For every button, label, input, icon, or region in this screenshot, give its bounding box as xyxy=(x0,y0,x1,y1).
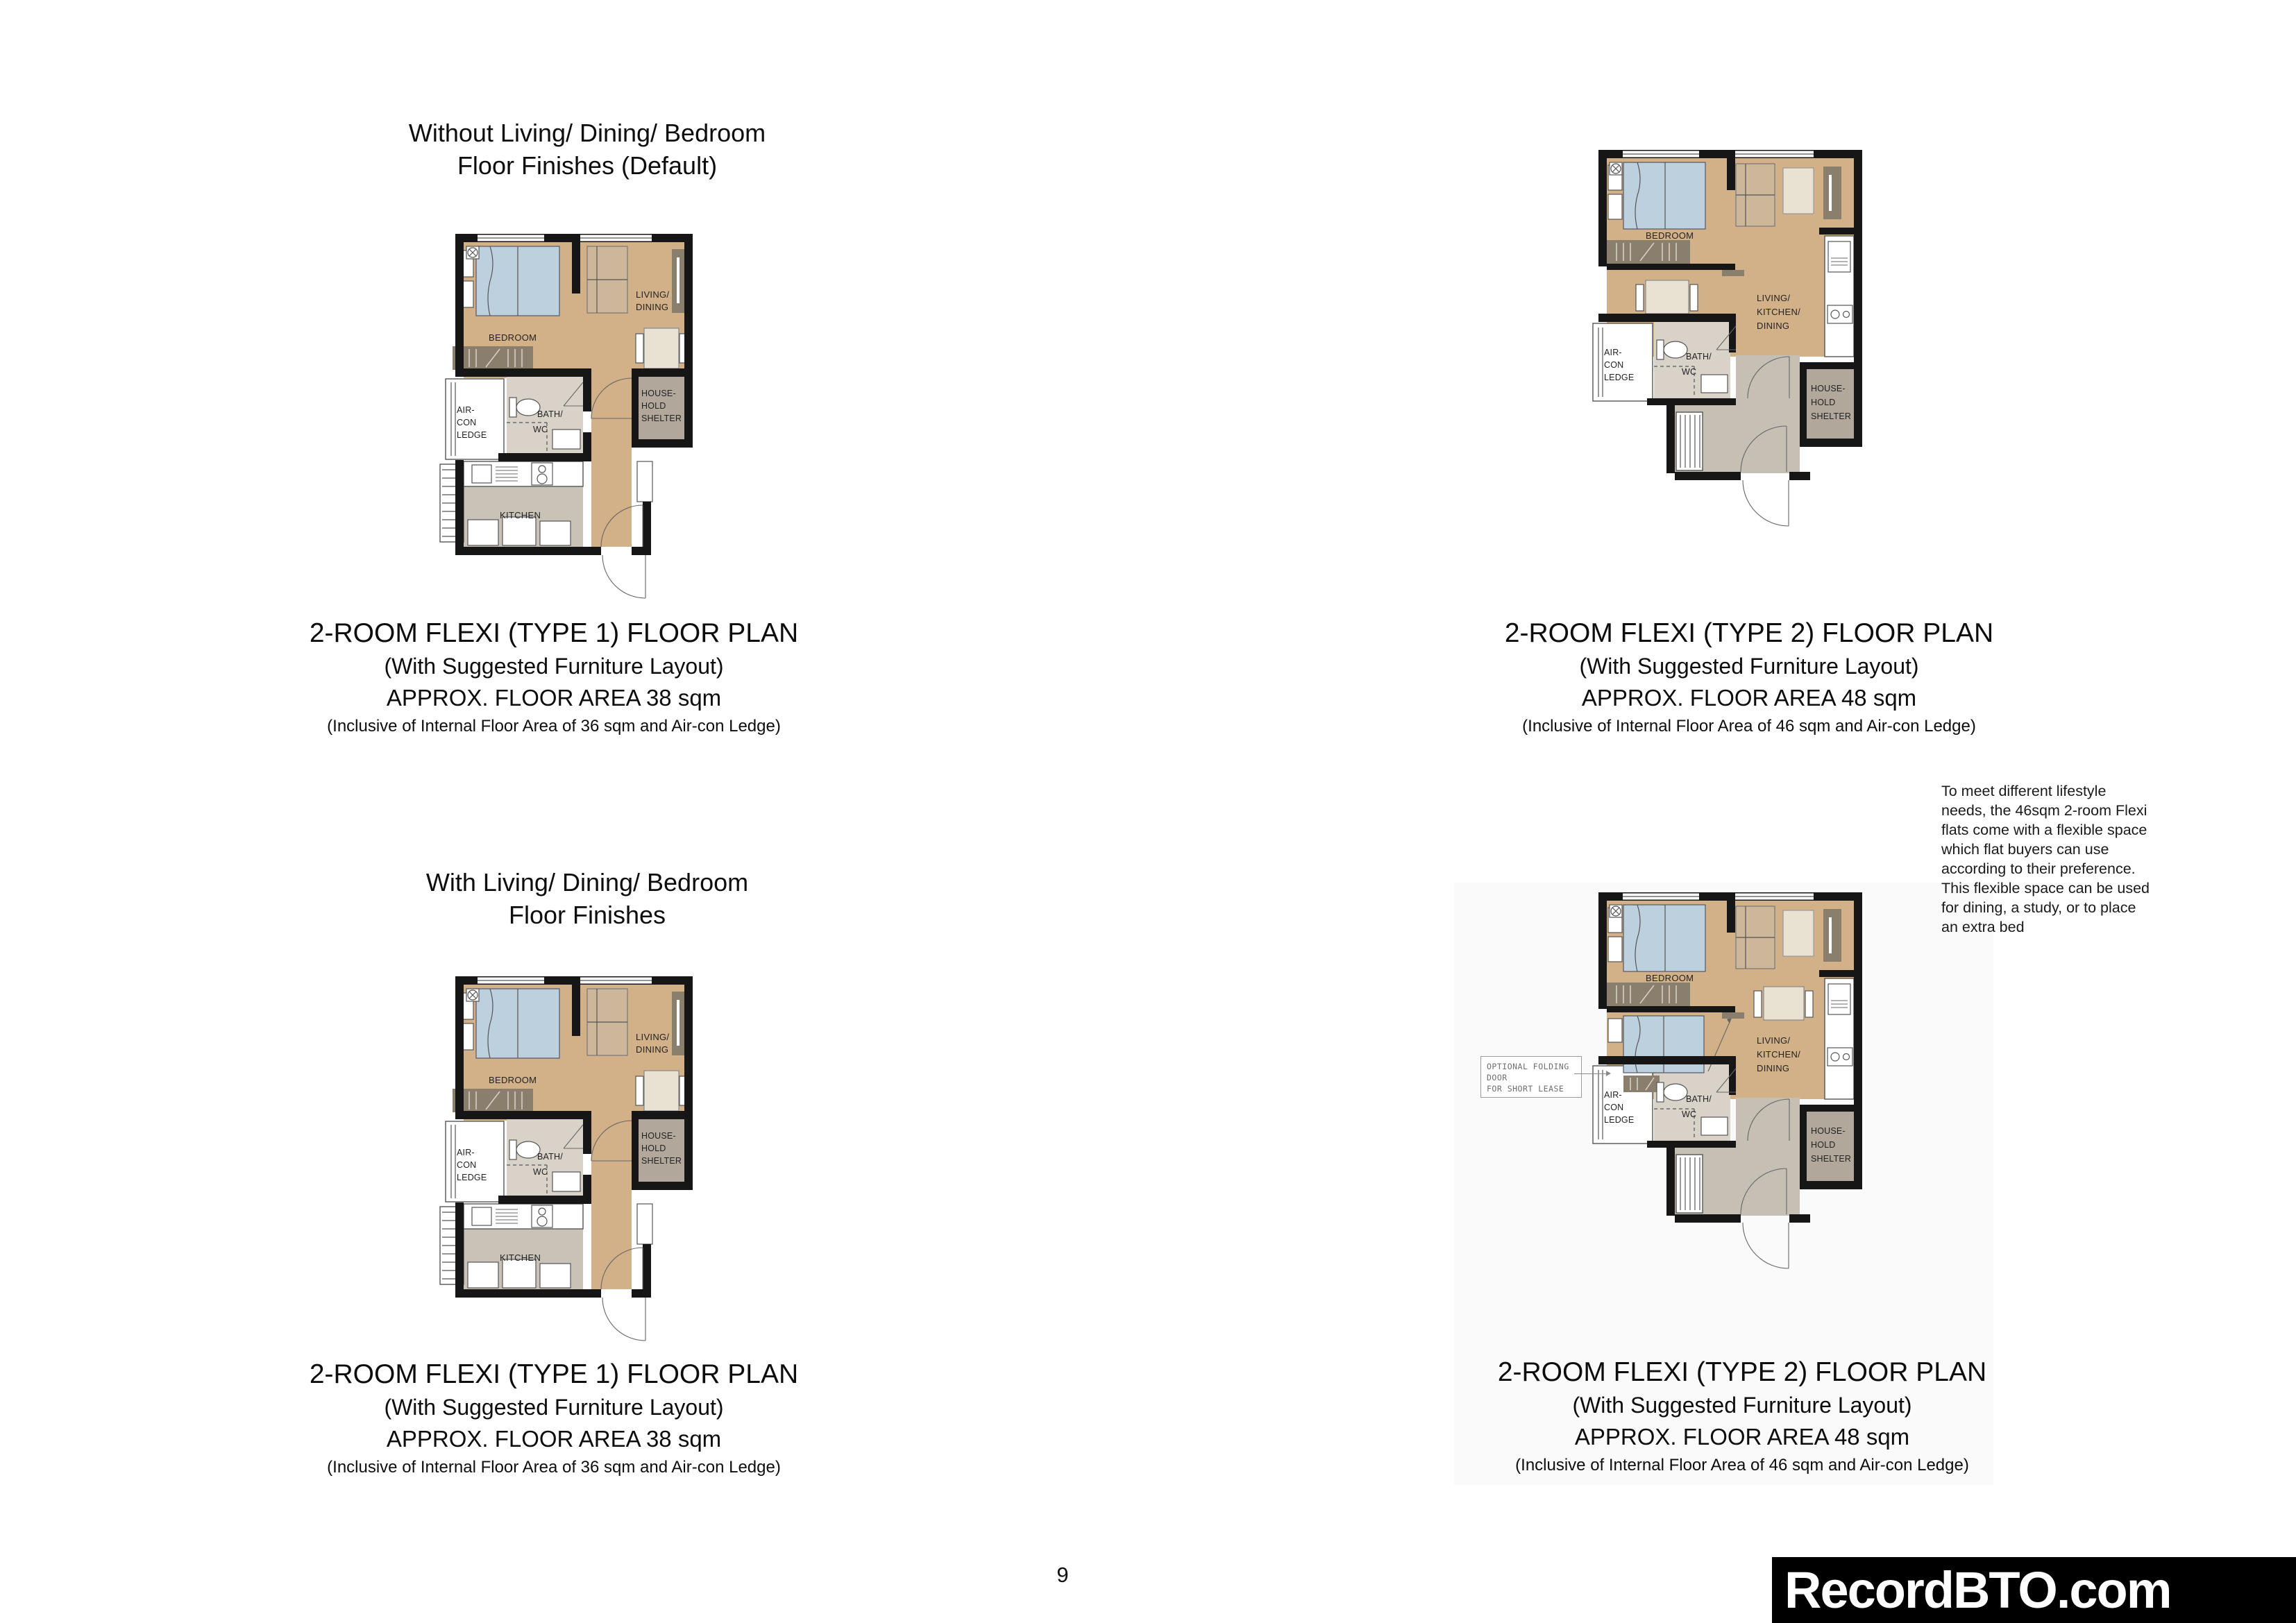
appliance xyxy=(540,521,571,545)
caption-line1: 2-ROOM FLEXI (TYPE 1) FLOOR PLAN xyxy=(255,1357,852,1392)
corridor-floor xyxy=(591,378,632,547)
fridge xyxy=(503,1259,536,1288)
recordbto-watermark: RecordBTO.com xyxy=(1772,1557,2296,1623)
basin xyxy=(552,430,580,449)
caption-line1: 2-ROOM FLEXI (TYPE 2) FLOOR PLAN xyxy=(1451,616,2048,651)
leader-arrow-icon xyxy=(1606,1071,1611,1076)
caption-line1: 2-ROOM FLEXI (TYPE 2) FLOOR PLAN xyxy=(1444,1355,2041,1390)
foyer-floor-upper xyxy=(1736,355,1800,400)
chair xyxy=(636,334,643,363)
isolator-symbol xyxy=(1610,162,1622,175)
room-label-bath: BATH/ xyxy=(1686,352,1712,362)
kitchen-sink xyxy=(472,1207,491,1225)
side-table xyxy=(1608,194,1622,219)
room-label-dining: DINING xyxy=(1757,1063,1789,1073)
caption-line2: (With Suggested Furniture Layout) xyxy=(255,1392,852,1423)
room-label-aircon: LEDGE xyxy=(1604,1115,1634,1125)
room-label-shelter: HOUSE- xyxy=(641,389,676,398)
folding-door-stub xyxy=(1722,270,1744,276)
appliance xyxy=(468,520,498,545)
toilet xyxy=(1664,341,1687,358)
floor-plan-type1: BEDROOM LIVING/ DINING AIR- CON LEDGE BA… xyxy=(436,974,714,1352)
fridge xyxy=(503,517,536,545)
room-label-bedroom: BEDROOM xyxy=(1646,973,1694,983)
room-label-kitchen: KITCHEN xyxy=(500,510,541,520)
caption-line3: APPROX. FLOOR AREA 38 sqm xyxy=(255,682,852,714)
caption-type2-bottom: 2-ROOM FLEXI (TYPE 2) FLOOR PLAN (With S… xyxy=(1444,1355,2041,1478)
fridge xyxy=(1828,984,1850,1014)
floor-plan-type2-flexi: BEDROOM LIVING/ KITCHEN/ DINING AIR- CON… xyxy=(1585,890,1876,1316)
coffee-table xyxy=(1783,168,1814,214)
room-label-wc: WC xyxy=(1682,1110,1696,1119)
room-label-bedroom: BEDROOM xyxy=(1646,230,1694,241)
room-label-wc: WC xyxy=(533,425,548,434)
room-label-wc: WC xyxy=(1682,367,1696,377)
entry-niche xyxy=(637,1204,652,1244)
room-label-living: LIVING/ xyxy=(636,289,669,300)
caption-line1: 2-ROOM FLEXI (TYPE 1) FLOOR PLAN xyxy=(255,616,852,651)
room-label-living: LIVING/ xyxy=(636,1032,669,1042)
room-label-shelter: HOLD xyxy=(641,1144,666,1153)
room-label-bedroom: BEDROOM xyxy=(489,1075,537,1085)
watermark-text: RecordBTO.com xyxy=(1784,1561,2171,1620)
room-label-shelter: HOLD xyxy=(1811,398,1836,407)
coffee-table xyxy=(1783,910,1814,956)
room-label-bath: BATH/ xyxy=(1686,1094,1712,1104)
floor-plan-type2-default: BEDROOM LIVING/ KITCHEN/ DINING AIR- CON… xyxy=(1585,147,1876,574)
floor-plan-type1-finishes: BEDROOM LIVING/ DINING AIR- CON LEDGE BA… xyxy=(436,974,714,1355)
fridge xyxy=(1828,241,1850,272)
tv-console xyxy=(1823,909,1841,962)
caption-type2-top: 2-ROOM FLEXI (TYPE 2) FLOOR PLAN (With S… xyxy=(1451,616,2048,739)
room-label-aircon: CON xyxy=(1604,1103,1623,1112)
caption-line2: (With Suggested Furniture Layout) xyxy=(255,651,852,682)
room-label-dining: DINING xyxy=(1757,321,1789,331)
room-label-aircon: AIR- xyxy=(457,405,475,415)
floor-plan-type2: BEDROOM LIVING/ KITCHEN/ DINING AIR- CON… xyxy=(1585,147,1876,570)
room-label-shelter: HOUSE- xyxy=(641,1131,676,1141)
caption-line3: APPROX. FLOOR AREA 48 sqm xyxy=(1444,1421,2041,1453)
room-label-shelter: HOUSE- xyxy=(1811,384,1846,393)
room-label-kitchen: KITCHEN/ xyxy=(1757,1049,1800,1060)
appliance xyxy=(540,1264,571,1288)
room-label-dining: DINING xyxy=(636,1044,668,1055)
room-label-aircon: LEDGE xyxy=(1604,373,1634,382)
side-table xyxy=(1608,937,1622,962)
room-label-aircon: LEDGE xyxy=(457,1173,487,1182)
corridor-floor xyxy=(591,1121,632,1289)
wardrobe xyxy=(1607,240,1690,264)
room-label-bath: BATH/ xyxy=(537,1152,563,1162)
toilet-tank xyxy=(1657,1082,1664,1102)
room-label-shelter: HOLD xyxy=(1811,1140,1836,1150)
appliance xyxy=(468,1262,498,1288)
toilet xyxy=(516,1141,540,1158)
caption-type1-bottom: 2-ROOM FLEXI (TYPE 1) FLOOR PLAN (With S… xyxy=(255,1357,852,1480)
section-title-without-finishes: Without Living/ Dining/ Bedroom Floor Fi… xyxy=(310,117,865,182)
basin xyxy=(1701,1117,1728,1135)
floor-plan-type2: BEDROOM LIVING/ KITCHEN/ DINING AIR- CON… xyxy=(1585,890,1876,1313)
kitchen-sink xyxy=(472,465,491,483)
room-label-bedroom: BEDROOM xyxy=(489,332,537,343)
tv-console xyxy=(1823,167,1841,219)
room-label-aircon: AIR- xyxy=(1604,1090,1622,1100)
isolator-symbol xyxy=(1610,905,1622,917)
room-label-shelter: HOLD xyxy=(641,401,666,411)
room-label-living: LIVING/ xyxy=(1757,293,1790,303)
chair xyxy=(636,1076,643,1105)
toilet-tank xyxy=(509,398,516,417)
caption-type1-top: 2-ROOM FLEXI (TYPE 1) FLOOR PLAN (With S… xyxy=(255,616,852,739)
toilet xyxy=(516,399,540,416)
caption-line4: (Inclusive of Internal Floor Area of 46 … xyxy=(1451,714,2048,739)
caption-line4: (Inclusive of Internal Floor Area of 36 … xyxy=(255,1455,852,1480)
room-label-shelter: SHELTER xyxy=(1811,1154,1851,1164)
room-label-kitchen: KITCHEN xyxy=(500,1252,541,1263)
room-label-living: LIVING/ xyxy=(1757,1035,1790,1046)
folding-door-stub xyxy=(1722,1012,1744,1019)
caption-line2: (With Suggested Furniture Layout) xyxy=(1451,651,2048,682)
isolator-symbol xyxy=(466,989,479,1001)
room-label-bath: BATH/ xyxy=(537,409,563,419)
dining-table xyxy=(644,1071,679,1111)
caption-line4: (Inclusive of Internal Floor Area of 36 … xyxy=(255,714,852,739)
floor-plan-type1: BEDROOM LIVING/ DINING AIR- CON LEDGE BA… xyxy=(436,231,714,609)
isolator-symbol xyxy=(466,246,479,259)
caption-line3: APPROX. FLOOR AREA 48 sqm xyxy=(1451,682,2048,714)
foyer-floor-upper xyxy=(1736,1098,1800,1142)
room-label-aircon: LEDGE xyxy=(457,430,487,440)
room-label-aircon: AIR- xyxy=(1604,348,1622,357)
leader-line xyxy=(1574,1073,1606,1074)
toilet-tank xyxy=(509,1140,516,1159)
caption-line4: (Inclusive of Internal Floor Area of 46 … xyxy=(1444,1453,2041,1478)
caption-line2: (With Suggested Furniture Layout) xyxy=(1444,1390,2041,1421)
room-label-shelter: SHELTER xyxy=(1811,411,1851,421)
brochure-page: Without Living/ Dining/ Bedroom Floor Fi… xyxy=(0,0,2296,1623)
caption-line3: APPROX. FLOOR AREA 38 sqm xyxy=(255,1423,852,1455)
room-label-aircon: CON xyxy=(457,1160,476,1170)
dining-table xyxy=(644,328,679,368)
room-label-aircon: AIR- xyxy=(457,1148,475,1157)
wardrobe xyxy=(1607,983,1690,1006)
room-label-shelter: SHELTER xyxy=(641,414,682,423)
room-label-aircon: CON xyxy=(457,418,476,427)
toilet-tank xyxy=(1657,340,1664,359)
floor-plan-type1-default: BEDROOM LIVING/ DINING AIR- CON LEDGE BA… xyxy=(436,231,714,613)
toilet xyxy=(1664,1084,1687,1101)
room-label-wc: WC xyxy=(533,1167,548,1177)
room-label-aircon: CON xyxy=(1604,360,1623,370)
flexi-note-text: To meet different lifestyle needs, the 4… xyxy=(1941,781,2184,937)
room-label-shelter: SHELTER xyxy=(641,1156,682,1166)
room-label-dining: DINING xyxy=(636,302,668,312)
entry-niche xyxy=(637,461,652,502)
basin xyxy=(552,1172,580,1191)
room-label-kitchen: KITCHEN/ xyxy=(1757,307,1800,317)
optional-folding-door-note: OPTIONAL FOLDING DOOR FOR SHORT LEASE xyxy=(1480,1056,1582,1098)
section-title-with-finishes: With Living/ Dining/ Bedroom Floor Finis… xyxy=(310,866,865,931)
room-label-shelter: HOUSE- xyxy=(1811,1126,1846,1136)
basin xyxy=(1701,375,1728,393)
page-number: 9 xyxy=(1018,1563,1108,1588)
